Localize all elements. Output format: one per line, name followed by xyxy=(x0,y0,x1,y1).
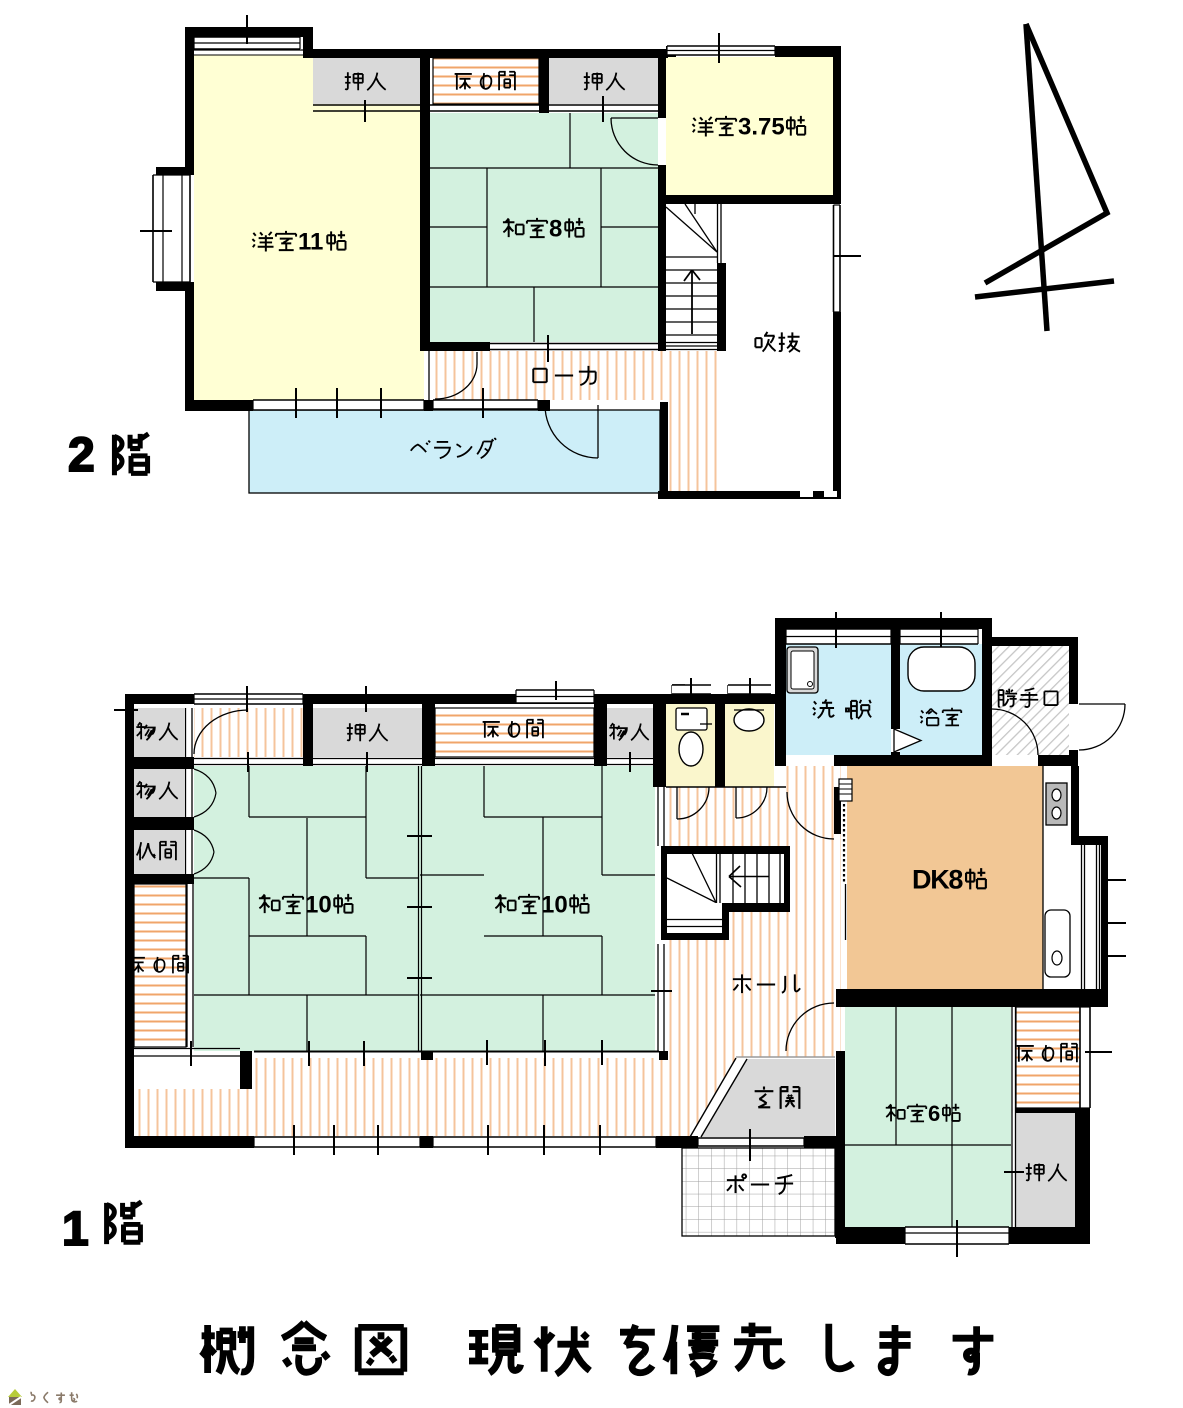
svg-text:8: 8 xyxy=(948,864,963,894)
svg-text:2: 2 xyxy=(68,429,95,482)
svg-text:K: K xyxy=(930,864,950,894)
svg-text:11: 11 xyxy=(298,229,323,256)
svg-text:D: D xyxy=(912,864,932,894)
svg-text:10: 10 xyxy=(305,892,332,919)
svg-text:3.75: 3.75 xyxy=(738,114,785,141)
svg-text:1: 1 xyxy=(62,1203,89,1256)
svg-text:10: 10 xyxy=(541,892,568,919)
svg-text:8: 8 xyxy=(549,216,562,243)
svg-text:6: 6 xyxy=(928,1101,940,1126)
